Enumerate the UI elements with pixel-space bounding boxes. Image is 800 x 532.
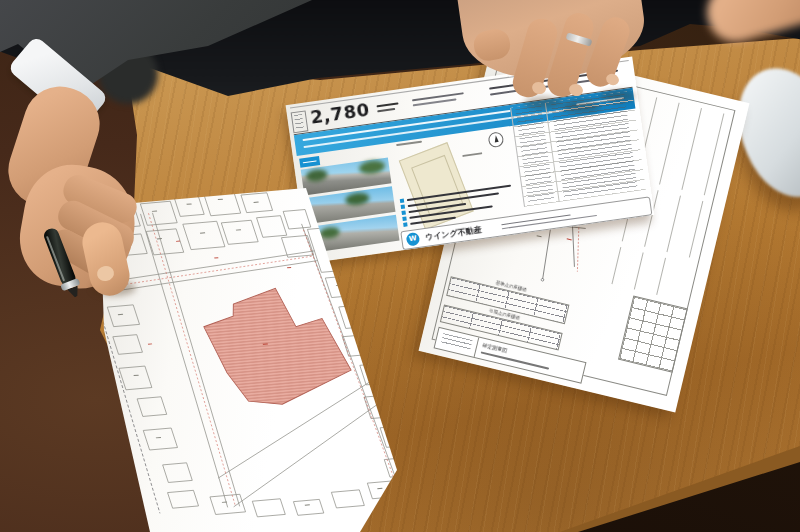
- fingertip-shadow-3: [600, 90, 636, 102]
- fingertip-shadow-1: [524, 96, 562, 109]
- photo-tag: [299, 156, 320, 168]
- price-label-cell: [291, 110, 309, 133]
- compass-icon: [487, 131, 504, 148]
- company-name: ウイング不動産: [425, 224, 483, 243]
- photo-scene: 基準点の座標値 引照点の座標値 確定測量図 2,780: [0, 0, 800, 532]
- fingertip-shadow-2: [562, 100, 600, 113]
- flyer-price: 2,780: [309, 99, 371, 128]
- wing-logo-icon: W: [406, 231, 421, 246]
- highlighted-lot: [194, 284, 360, 409]
